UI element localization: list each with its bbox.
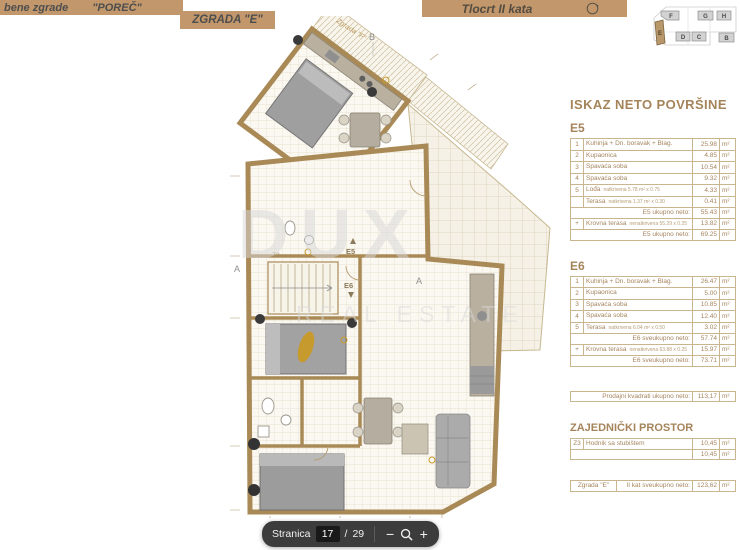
nightstand-dot: [248, 438, 260, 450]
table-row: + Krovna terasanenatkrivena 55.29 x 0.25…: [571, 218, 736, 230]
section-marker-a-right: A: [416, 276, 422, 286]
building-g-label: G: [703, 14, 708, 20]
nightstand-dot: [293, 35, 303, 45]
table-row: 2 Kupaonica 5.00 m²: [571, 288, 736, 300]
building-f-label: F: [669, 14, 673, 20]
total-row: E6 sveukupno neto: 73.71 m²: [571, 356, 736, 367]
common-area-title: ZAJEDNIČKI PROSTOR: [570, 422, 738, 434]
watermark-line2: REAL ESTATE: [296, 301, 525, 327]
project-banner: bene zgrade "POREČ": [0, 0, 183, 15]
page-separator: /: [345, 528, 348, 540]
pdf-toolbar: Stranica / 29 − +: [262, 521, 439, 547]
page-number-input[interactable]: [316, 526, 340, 542]
zoom-out-button[interactable]: −: [385, 524, 396, 544]
grand-total-row: Zgrada "E" II kat sveukupno neto: 123,62…: [571, 481, 736, 492]
site-map: F G H E D C B: [648, 2, 740, 48]
building-c-label: C: [697, 35, 702, 41]
table-row: 1 Kuhinja + Dn. boravak + Blag. 26.47 m²: [571, 276, 736, 288]
nightstand-dot: [255, 314, 265, 324]
sofa: [436, 414, 470, 488]
page-total: 29: [352, 528, 364, 540]
table-row: 5 Lođanatkrivena 5.78 m² x 0.75 4.33 m²: [571, 185, 736, 197]
coffee-table: [402, 424, 428, 454]
total-row: E5 ukupno neto: 69.25 m²: [571, 230, 736, 241]
e5-heading: E5: [570, 121, 738, 135]
table-row: 2 Kupaonica 4.85 m²: [571, 150, 736, 162]
project-banner-text: bene zgrade: [4, 2, 68, 14]
table-row: Terasanatkrivena 1.37 m² x 0.30 0.41 m²: [571, 196, 736, 208]
table-row: Z3 Hodnik sa stubištem 10,45 m²: [571, 439, 736, 450]
bed-middle: [266, 324, 346, 374]
area-summary-panel: ISKAZ NETO POVRŠINE E5 1 Kuhinja + Dn. b…: [570, 97, 738, 492]
building-h-label: H: [722, 14, 726, 20]
summary-row: Prodajni kvadrati ukupno neto: 113,17 m²: [571, 391, 736, 402]
table-row: 1 Kuhinja + Dn. boravak + Blag. 25.98 m²: [571, 139, 736, 151]
subtotal-row: E5 ukupno neto: 55.43 m²: [571, 208, 736, 219]
e6-table: 1 Kuhinja + Dn. boravak + Blag. 26.47 m²…: [570, 276, 736, 367]
table-row: 4 Spavaća soba 12.40 m²: [571, 311, 736, 323]
subtotal-row: E6 sveukupno neto: 57.74 m²: [571, 334, 736, 345]
section-marker-b: B: [369, 32, 375, 42]
e5-table: 1 Kuhinja + Dn. boravak + Blag. 25.98 m²…: [570, 138, 736, 241]
common-area-table: Z3 Hodnik sa stubištem 10,45 m² 10,45 m²: [570, 438, 736, 460]
building-d-label: D: [681, 35, 686, 41]
table-row: 3 Spavaća soba 10.54 m²: [571, 162, 736, 174]
summary-title: ISKAZ NETO POVRŠINE: [570, 97, 738, 112]
zoom-in-button[interactable]: +: [418, 524, 429, 544]
nightstand-dot: [248, 484, 260, 496]
table-row: 3 Spavaća soba 10.85 m²: [571, 299, 736, 311]
kitchen-counter-lower: [470, 274, 494, 396]
building-e-label: E: [658, 31, 662, 37]
nightstand-dot: [367, 87, 377, 97]
table-row: 4 Spavaća soba 9.32 m²: [571, 173, 736, 185]
table-row: + Krovna terasanenatkrivena 63.88 x 0.25…: [571, 344, 736, 356]
magnifier-icon: [400, 528, 413, 541]
floor-plan: B A A E5 E6 Z3 Zgrada "F" DUX REAL ESTAT…: [210, 16, 625, 518]
zoom-fit-button[interactable]: [400, 524, 413, 544]
page-label: Stranica: [272, 528, 311, 540]
project-name: "POREČ": [92, 2, 142, 14]
e6-heading: E6: [570, 259, 738, 273]
table-row: 5 Terasanatkrivena 6.04 m² x 0.50 3.02 m…: [571, 322, 736, 334]
sales-summary-table: Prodajni kvadrati ukupno neto: 113,17 m²: [570, 391, 736, 403]
floor-title: Tlocrt II kata: [462, 2, 533, 16]
building-b-label: B: [724, 36, 729, 42]
total-row: 10,45 m²: [571, 449, 736, 460]
watermark-line1: DUX: [238, 195, 422, 273]
unit-label-e6: E6: [344, 281, 353, 290]
bed-lower: [260, 454, 344, 510]
building-total-table: Zgrada "E" II kat sveukupno neto: 123,62…: [570, 480, 736, 492]
floor-title-banner: Tlocrt II kata: [422, 0, 627, 17]
toolbar-divider: [374, 526, 375, 542]
